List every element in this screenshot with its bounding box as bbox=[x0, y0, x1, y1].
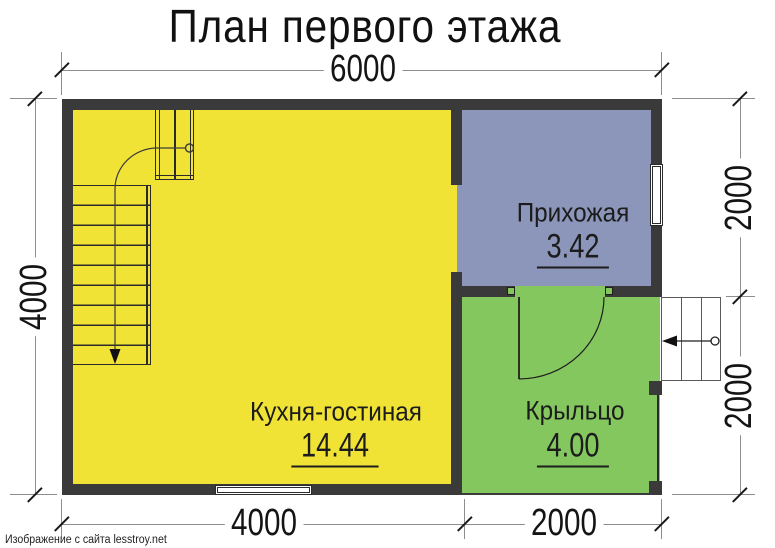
hallway-label: Прихожая bbox=[517, 200, 630, 227]
dim-ext-bottom-middle bbox=[464, 499, 465, 539]
window-frame bbox=[217, 487, 310, 493]
kitchen-hallway-opening bbox=[457, 185, 462, 272]
kitchen-area: 14.44 bbox=[291, 429, 378, 468]
dim-ext-top-right bbox=[661, 52, 662, 95]
wall-interior-lower bbox=[451, 272, 462, 495]
hallway-porch-door-gap bbox=[515, 286, 605, 297]
door-jamb-left bbox=[507, 287, 515, 295]
stairs-winder-line bbox=[159, 110, 160, 180]
stairs-flight-edge bbox=[146, 186, 148, 364]
dim-value-right-upper: 2000 bbox=[719, 159, 759, 237]
window-right-wall bbox=[650, 164, 663, 226]
porch-post-bottom bbox=[649, 481, 662, 495]
porch-label: Крыльцо bbox=[525, 398, 624, 425]
window-bottom-wall bbox=[215, 485, 312, 495]
porch-area: 4.00 bbox=[537, 429, 609, 468]
watermark: Изображение с сайта lesstroy.net bbox=[5, 534, 167, 546]
wall-divider-left bbox=[451, 286, 515, 297]
stairs-flight bbox=[73, 185, 151, 365]
kitchen-label: Кухня-гостиная bbox=[250, 399, 422, 426]
stairs-winder-divider bbox=[174, 110, 176, 180]
dim-value-left: 4000 bbox=[14, 258, 54, 336]
dim-value-top: 6000 bbox=[324, 49, 402, 89]
dim-ext-top-left bbox=[61, 52, 62, 95]
stairs-winder-line bbox=[190, 110, 191, 180]
window-frame bbox=[652, 166, 661, 224]
porch-railing-line bbox=[657, 381, 659, 495]
wall-interior-upper bbox=[451, 99, 462, 185]
porch-post-top bbox=[649, 381, 662, 395]
wall-divider-right bbox=[605, 286, 662, 297]
floor-plan: План первого этажа 6000 4000 2000 2000 4… bbox=[0, 0, 775, 548]
dim-ext-bottom-left bbox=[61, 499, 62, 539]
hallway-area: 3.42 bbox=[537, 230, 609, 269]
dim-ext-bottom-right bbox=[661, 499, 662, 539]
wall-top bbox=[62, 99, 662, 110]
porch-step-line bbox=[701, 298, 702, 380]
door-jamb-right bbox=[605, 287, 613, 295]
dim-value-bottom-left: 4000 bbox=[225, 503, 303, 543]
wall-left bbox=[62, 99, 73, 495]
stairs-winder-line bbox=[155, 175, 194, 176]
porch-steps bbox=[661, 297, 721, 381]
dim-value-right-lower: 2000 bbox=[719, 357, 759, 435]
porch-step-line bbox=[681, 298, 682, 380]
page-title: План первого этажа bbox=[169, 3, 562, 49]
dim-value-bottom-right: 2000 bbox=[525, 503, 603, 543]
